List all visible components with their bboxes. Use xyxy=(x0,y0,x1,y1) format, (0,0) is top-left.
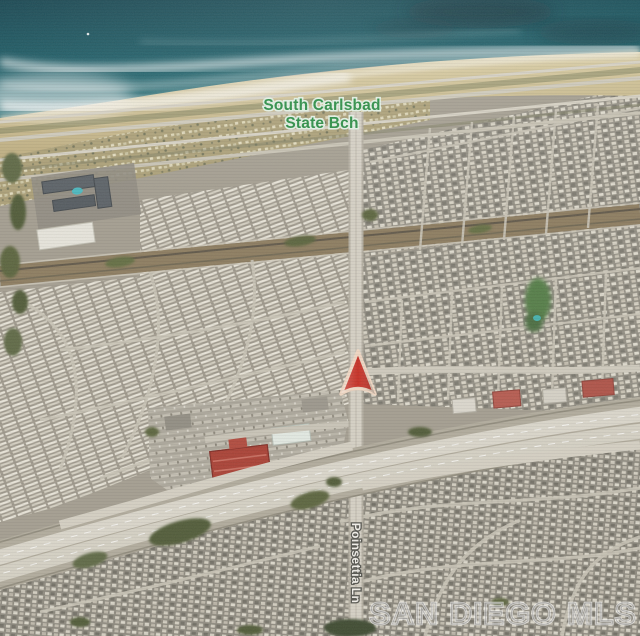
mls-listing-map-screenshot: South Carlsbad State Bch Poinsettia Ln S… xyxy=(0,0,640,636)
film-grain-overlay xyxy=(0,0,640,636)
satellite-map[interactable]: South Carlsbad State Bch Poinsettia Ln S… xyxy=(0,0,640,636)
